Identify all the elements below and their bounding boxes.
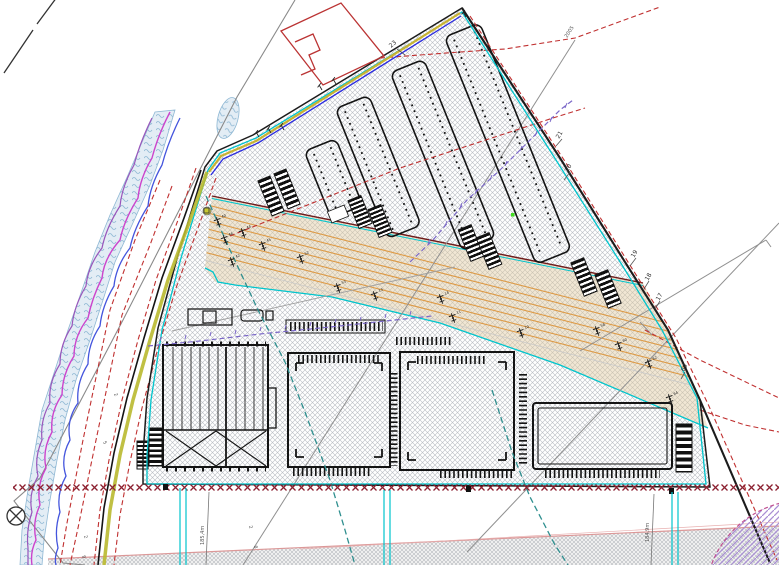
fence-post-1 (163, 484, 168, 490)
fence-line (13, 484, 779, 497)
distance-label-2: 184,9m (645, 523, 651, 542)
building-1-stair-west (149, 428, 162, 466)
site-plan-drawing: 185,4m 184,9m 44 45 52 53 13 14 11 10 58… (0, 0, 779, 565)
fence-post-2 (466, 486, 471, 492)
distance-label-1: 185,4m (200, 526, 206, 545)
green-marker (511, 213, 515, 217)
survey-monument (7, 507, 25, 525)
fence-x-row (13, 484, 779, 497)
site-plan-viewport: 185,4m 184,9m 44 45 52 53 13 14 11 10 58… (0, 0, 779, 565)
building-4-ramp-east (676, 424, 692, 472)
